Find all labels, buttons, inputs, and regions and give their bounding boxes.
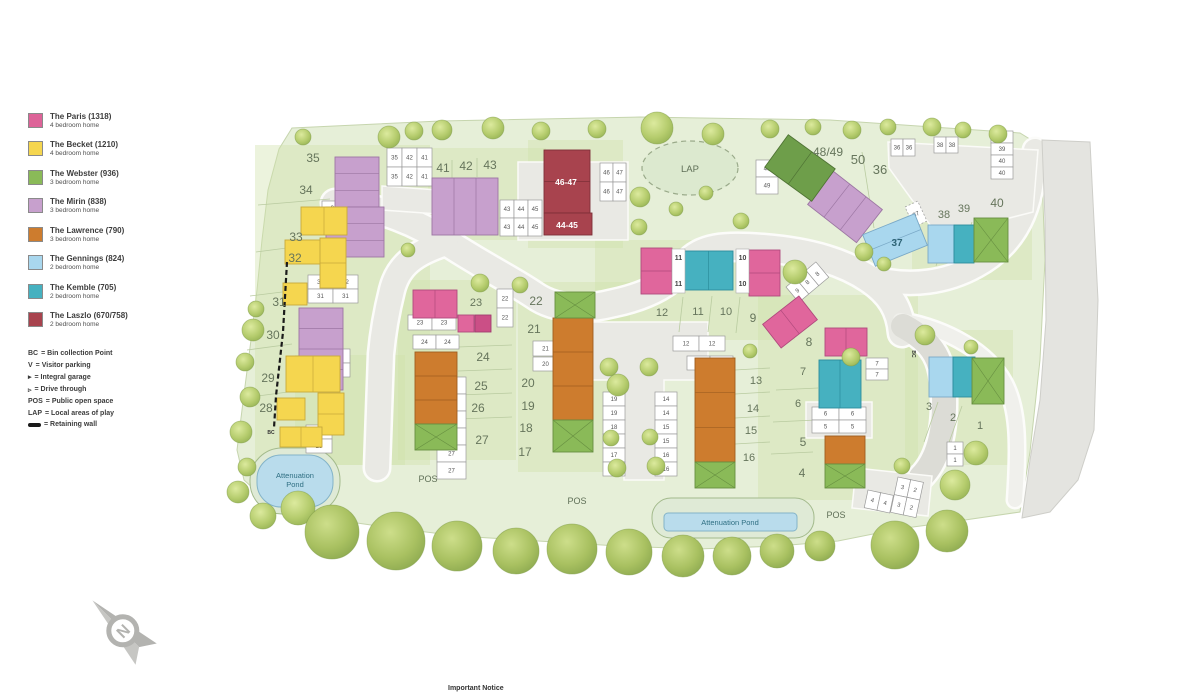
tree bbox=[855, 243, 873, 261]
building-footprint bbox=[695, 358, 735, 462]
building bbox=[415, 424, 457, 450]
tree bbox=[647, 457, 665, 475]
parking-bay-label: 47 bbox=[616, 171, 623, 177]
building bbox=[277, 398, 305, 420]
plot-label: 34 bbox=[299, 183, 313, 197]
tree bbox=[401, 243, 415, 257]
parking-group: 6655 bbox=[812, 407, 866, 433]
plot-label: 11 bbox=[692, 306, 703, 318]
tree bbox=[603, 430, 619, 446]
parking-bay-label: 41 bbox=[421, 175, 428, 181]
tree bbox=[640, 358, 658, 376]
parking-group: 3838 bbox=[934, 137, 958, 153]
compass: N bbox=[70, 578, 200, 696]
building bbox=[695, 462, 735, 488]
building bbox=[928, 225, 954, 263]
parking-group: 77 bbox=[866, 358, 888, 380]
plot-label: 39 bbox=[958, 203, 970, 215]
plot-label: 7 bbox=[800, 366, 806, 378]
building-footprint bbox=[277, 398, 305, 420]
plot-label: 40 bbox=[990, 196, 1004, 210]
building-footprint bbox=[415, 352, 457, 424]
parking-bay-label: 35 bbox=[391, 175, 398, 181]
plot-label: 13 bbox=[750, 375, 762, 387]
tree bbox=[733, 213, 749, 229]
parking-bay-label: 36 bbox=[906, 146, 913, 152]
tree bbox=[743, 344, 757, 358]
parking-group: 354241354241 bbox=[387, 148, 432, 186]
building bbox=[684, 251, 733, 290]
plot-number-strip-label: 11 bbox=[675, 255, 683, 262]
plot-label: POS bbox=[418, 474, 437, 484]
parking-court bbox=[382, 186, 438, 214]
plot-label: 22 bbox=[529, 294, 543, 308]
tree bbox=[926, 510, 968, 552]
tree bbox=[631, 219, 647, 235]
plot-label: 1 bbox=[977, 420, 983, 432]
site-plan-page: { "legend": { "items": [ {"name": "The P… bbox=[0, 0, 1191, 696]
parking-bay-label: 27 bbox=[448, 469, 455, 475]
parking-bay-label: 15 bbox=[663, 425, 670, 431]
parking-bay-label: 47 bbox=[616, 190, 623, 196]
tree bbox=[877, 257, 891, 271]
building bbox=[553, 420, 593, 452]
plot-label: 48/49 bbox=[813, 145, 843, 159]
tree bbox=[305, 505, 359, 559]
parking-bay-label: 45 bbox=[532, 225, 539, 231]
tree bbox=[662, 535, 704, 577]
plot-label: BC bbox=[910, 350, 916, 358]
building bbox=[695, 358, 735, 462]
tree bbox=[805, 531, 835, 561]
tree bbox=[760, 534, 794, 568]
plot-label: 10 bbox=[720, 306, 732, 318]
parking-bay-label: 15 bbox=[663, 439, 670, 445]
plot-label: 36 bbox=[873, 162, 887, 177]
building bbox=[825, 464, 865, 488]
tree bbox=[547, 524, 597, 574]
tree bbox=[236, 353, 254, 371]
plot-label: BC bbox=[267, 430, 275, 436]
parking-group: 2222 bbox=[497, 289, 513, 327]
plot-number-strip-label: 11 bbox=[675, 281, 683, 288]
plot-label: 18 bbox=[519, 421, 533, 435]
tree bbox=[699, 186, 713, 200]
building bbox=[415, 352, 457, 424]
building bbox=[974, 218, 1008, 262]
plot-label: 20 bbox=[521, 376, 535, 390]
parking-bay-label: 22 bbox=[502, 297, 509, 303]
parking-bay-label: 38 bbox=[949, 143, 956, 149]
plot-label: 21 bbox=[527, 322, 541, 336]
plot-label: 27 bbox=[475, 433, 489, 447]
parking-bay-label: 40 bbox=[999, 159, 1006, 165]
building-footprint bbox=[954, 225, 974, 263]
building bbox=[280, 427, 322, 447]
parking-bay-label: 35 bbox=[391, 156, 398, 162]
tree bbox=[588, 120, 606, 138]
tree bbox=[842, 348, 860, 366]
plot-label: 31 bbox=[272, 295, 286, 309]
tree bbox=[702, 123, 724, 145]
plot-label: 16 bbox=[743, 452, 755, 464]
plot-label: 43 bbox=[483, 158, 497, 172]
parking-bay-label: 22 bbox=[502, 316, 509, 322]
tree bbox=[669, 202, 683, 216]
building bbox=[553, 318, 593, 420]
building bbox=[458, 315, 474, 332]
tree bbox=[482, 117, 504, 139]
parking-bay-label: 17 bbox=[611, 453, 618, 459]
parking-bay-label: 23 bbox=[417, 321, 424, 327]
tree bbox=[880, 119, 896, 135]
tree bbox=[240, 387, 260, 407]
tree bbox=[532, 122, 550, 140]
building-footprint bbox=[553, 318, 593, 420]
parking-bay-label: 36 bbox=[894, 146, 901, 152]
building bbox=[320, 238, 346, 288]
building-footprint bbox=[458, 315, 474, 332]
plot-label: 26 bbox=[471, 401, 485, 415]
tree bbox=[242, 319, 264, 341]
parking-bay-label: 49 bbox=[764, 184, 771, 190]
plot-label: 14 bbox=[747, 403, 759, 415]
tree bbox=[227, 481, 249, 503]
parking-bay-label: 44 bbox=[518, 225, 525, 231]
parking-bay-label: 38 bbox=[937, 143, 944, 149]
plot-label: 17 bbox=[518, 445, 532, 459]
plot-label: 44-45 bbox=[556, 220, 578, 230]
plot-label: 5 bbox=[800, 435, 807, 449]
parking-group: 1212 bbox=[673, 336, 725, 351]
parking-bay-label: 24 bbox=[444, 340, 451, 346]
plot-label: 6 bbox=[795, 398, 801, 410]
tree bbox=[405, 122, 423, 140]
building bbox=[825, 436, 865, 464]
parking-bay-label: 27 bbox=[448, 452, 455, 458]
plot-label: 12 bbox=[656, 307, 668, 319]
building-footprint bbox=[432, 178, 498, 235]
building-footprint bbox=[335, 157, 379, 207]
plot-label: 37 bbox=[891, 238, 903, 249]
tree bbox=[923, 118, 941, 136]
tree bbox=[713, 537, 751, 575]
tree bbox=[642, 429, 658, 445]
tree bbox=[608, 459, 626, 477]
parking-bay-label: 20 bbox=[542, 362, 549, 368]
tree bbox=[843, 121, 861, 139]
plot-label: 33 bbox=[289, 230, 303, 244]
parking-bay-label: 39 bbox=[999, 147, 1006, 153]
plot-label: 8 bbox=[806, 335, 813, 349]
parking-bay-label: 40 bbox=[999, 171, 1006, 177]
building bbox=[819, 360, 861, 408]
plot-label: 38 bbox=[938, 209, 950, 221]
parking-bay-label: 43 bbox=[504, 225, 511, 231]
plot-label: 41 bbox=[436, 161, 450, 175]
tree bbox=[250, 503, 276, 529]
tree bbox=[432, 521, 482, 571]
parking-bay-label: 19 bbox=[611, 411, 618, 417]
building bbox=[286, 356, 340, 392]
parking-bay-label: 44 bbox=[518, 207, 525, 213]
parking-bay-label: 24 bbox=[421, 340, 428, 346]
plot-number-strip-label: 10 bbox=[739, 281, 747, 288]
tree bbox=[783, 260, 807, 284]
tree bbox=[894, 458, 910, 474]
parking-group: 2424 bbox=[413, 335, 459, 349]
plot-label: 28 bbox=[259, 401, 273, 415]
parking-bay-label: 19 bbox=[611, 397, 618, 403]
building bbox=[475, 315, 491, 332]
parking-bay-label: 41 bbox=[421, 156, 428, 162]
tree bbox=[964, 340, 978, 354]
tree bbox=[493, 528, 539, 574]
tree bbox=[295, 129, 311, 145]
plot-label: 35 bbox=[306, 151, 320, 165]
parking-bay-label: 46 bbox=[603, 171, 610, 177]
parking-bay-label: 12 bbox=[709, 342, 716, 348]
tree bbox=[989, 125, 1007, 143]
building bbox=[641, 248, 672, 294]
building bbox=[555, 292, 595, 318]
plot-label: 2 bbox=[950, 412, 956, 424]
pond-label: Attenuation Pond bbox=[701, 518, 759, 527]
pond-label: Pond bbox=[286, 480, 304, 489]
plot-label: 4 bbox=[799, 466, 806, 480]
building bbox=[413, 290, 457, 318]
parking-group: 46474647 bbox=[600, 163, 626, 201]
plot-label: 15 bbox=[745, 425, 757, 437]
tree bbox=[761, 120, 779, 138]
tree bbox=[940, 470, 970, 500]
parking-bay-label: 42 bbox=[406, 156, 413, 162]
tree bbox=[367, 512, 425, 570]
tree bbox=[955, 122, 971, 138]
plot-label: 50 bbox=[851, 152, 865, 167]
building-footprint bbox=[928, 225, 954, 263]
plot-label: 32 bbox=[288, 251, 302, 265]
plot-label: 29 bbox=[261, 371, 275, 385]
plot-label: LAP bbox=[681, 164, 699, 175]
tree bbox=[432, 120, 452, 140]
tree bbox=[512, 277, 528, 293]
parking-group: 11 bbox=[947, 442, 963, 466]
tree bbox=[238, 458, 256, 476]
plot-label: POS bbox=[567, 496, 586, 506]
building bbox=[972, 358, 1004, 404]
tree bbox=[964, 441, 988, 465]
tree bbox=[248, 301, 264, 317]
plot-label: 24 bbox=[476, 350, 490, 364]
building bbox=[954, 225, 974, 263]
north-arrow: N bbox=[82, 590, 157, 665]
tree bbox=[378, 126, 400, 148]
plot-label: 3 bbox=[926, 401, 932, 413]
parking-bay-label: 46 bbox=[603, 190, 610, 196]
parking-bay-label: 21 bbox=[542, 347, 549, 353]
tree bbox=[600, 358, 618, 376]
tree bbox=[915, 325, 935, 345]
parking-bay-label: 14 bbox=[663, 397, 670, 403]
building bbox=[335, 157, 379, 207]
building bbox=[301, 207, 347, 235]
plot-label: 25 bbox=[474, 379, 488, 393]
tree bbox=[606, 529, 652, 575]
building bbox=[432, 178, 498, 235]
tree bbox=[471, 274, 489, 292]
parking-bay-label: 14 bbox=[663, 411, 670, 417]
parking-bay-label: 42 bbox=[406, 175, 413, 181]
plot-label: 30 bbox=[266, 328, 280, 342]
plot-number-strip-label: 10 bbox=[739, 255, 747, 262]
building-footprint bbox=[475, 315, 491, 332]
parking-bay-label: 31 bbox=[342, 294, 349, 300]
plot-label: 46-47 bbox=[555, 177, 577, 187]
tree bbox=[805, 119, 821, 135]
important-notice: Important Notice bbox=[448, 685, 504, 692]
parking-group: 3636 bbox=[891, 139, 915, 156]
tree bbox=[607, 374, 629, 396]
plot-label: POS bbox=[826, 510, 845, 520]
parking-bay-label: 31 bbox=[317, 294, 324, 300]
plot-label: 23 bbox=[470, 297, 482, 309]
parking-bay-label: 23 bbox=[441, 321, 448, 327]
tree bbox=[871, 521, 919, 569]
plot-label: 19 bbox=[521, 399, 535, 413]
parking-bay-label: 12 bbox=[683, 342, 690, 348]
tree bbox=[641, 112, 673, 144]
building bbox=[749, 250, 780, 296]
parking-bay-label: 45 bbox=[532, 207, 539, 213]
parking-bay-label: 16 bbox=[663, 453, 670, 459]
building-footprint bbox=[929, 357, 953, 397]
tree bbox=[630, 187, 650, 207]
building-footprint bbox=[825, 436, 865, 464]
building bbox=[929, 357, 953, 397]
tree bbox=[230, 421, 252, 443]
plot-label: 42 bbox=[459, 159, 473, 173]
parking-bay-label: 43 bbox=[504, 207, 511, 213]
parking-group: 434445434445 bbox=[500, 200, 542, 236]
plot-label: 9 bbox=[750, 311, 757, 325]
pond-label: Attenuation bbox=[276, 471, 314, 480]
